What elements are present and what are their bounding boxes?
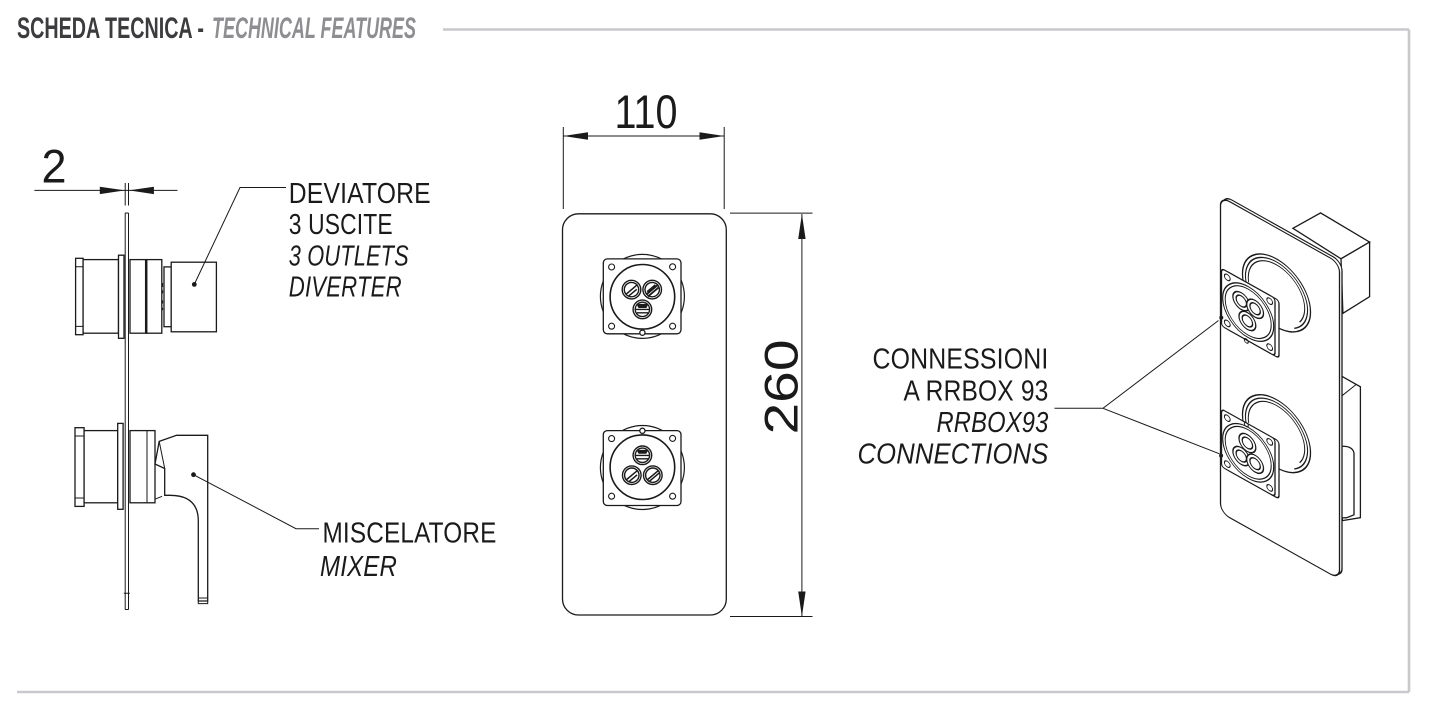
svg-text:3 USCITE: 3 USCITE [289,209,393,241]
svg-text:CONNECTIONS: CONNECTIONS [858,438,1049,470]
svg-text:RRBOX93: RRBOX93 [937,407,1049,439]
svg-text:3 OUTLETS: 3 OUTLETS [289,240,409,272]
svg-text:MISCELATORE: MISCELATORE [323,518,497,550]
svg-text:TECHNICAL FEATURES: TECHNICAL FEATURES [212,12,416,45]
svg-text:260: 260 [755,340,808,435]
svg-text:MIXER: MIXER [320,551,397,583]
svg-text:SCHEDA TECNICA -: SCHEDA TECNICA - [17,12,204,45]
svg-text:CONNESSIONI: CONNESSIONI [873,344,1049,376]
svg-text:110: 110 [615,85,678,138]
svg-text:A RRBOX 93: A RRBOX 93 [904,375,1049,407]
svg-text:DIVERTER: DIVERTER [289,271,402,303]
svg-text:2: 2 [42,140,67,193]
svg-text:DEVIATORE: DEVIATORE [289,178,431,210]
